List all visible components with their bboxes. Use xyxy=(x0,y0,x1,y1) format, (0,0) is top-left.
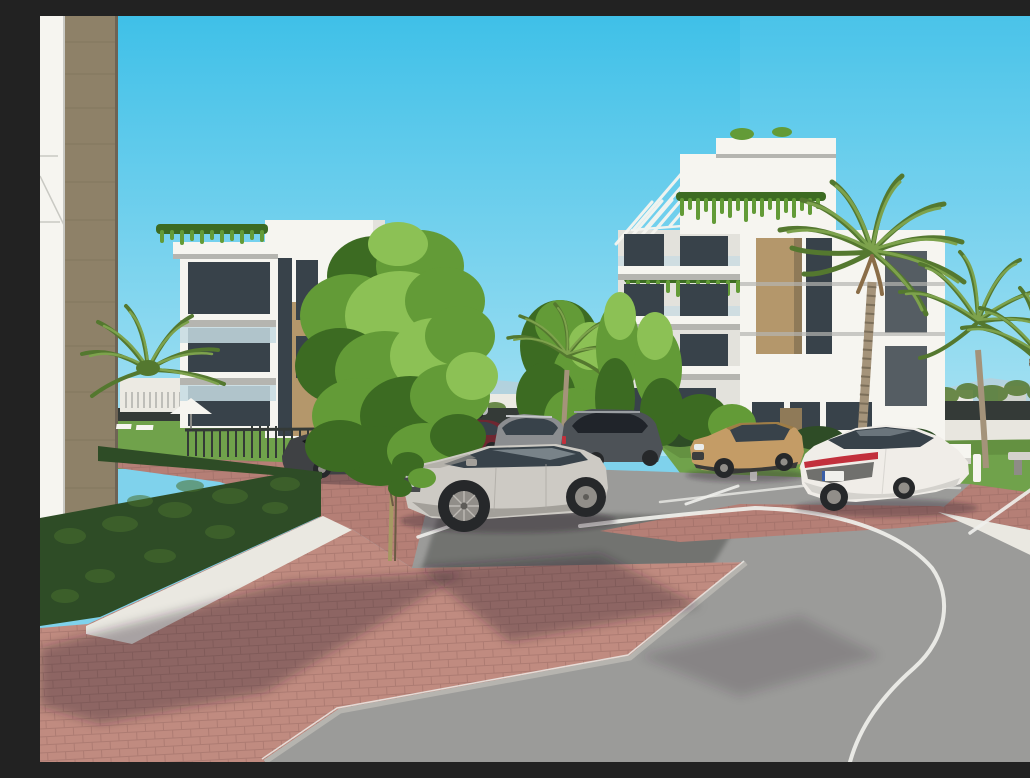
sun-lounger xyxy=(136,425,154,430)
headlight xyxy=(694,444,704,450)
top-roof-slab xyxy=(716,138,836,154)
scene-canvas xyxy=(40,16,1030,762)
render-image xyxy=(40,16,1030,762)
sun-lounger xyxy=(116,424,132,429)
rear-wheel xyxy=(566,477,606,517)
bollard xyxy=(973,454,981,482)
roof-slab xyxy=(173,242,278,254)
front-wheel xyxy=(438,480,490,532)
license-plate xyxy=(822,471,844,481)
